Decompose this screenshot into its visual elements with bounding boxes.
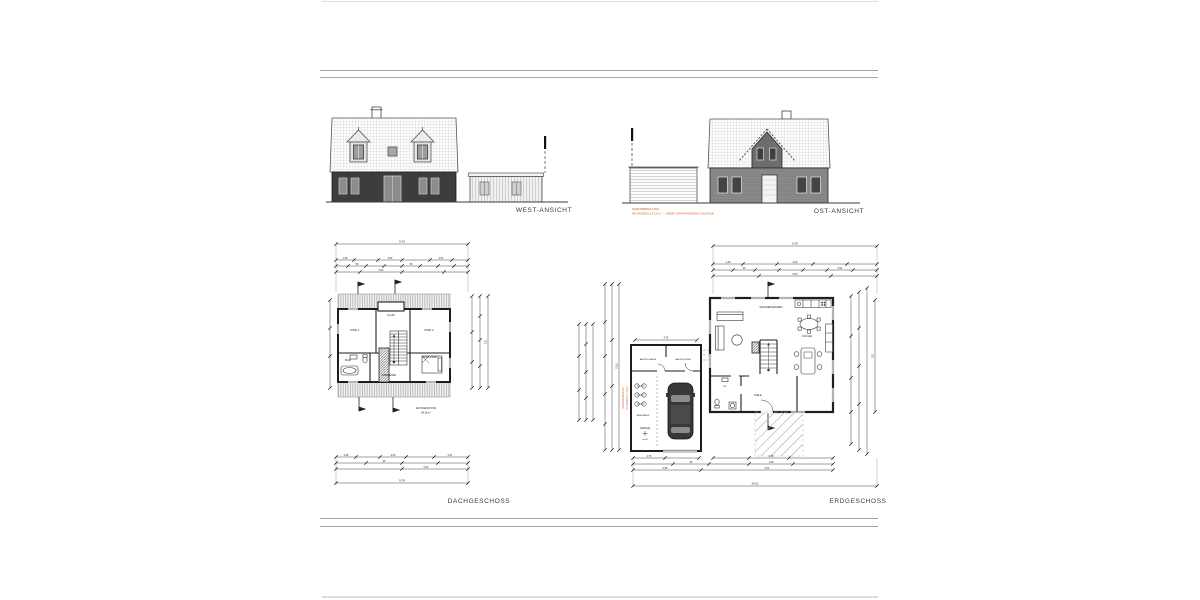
garage-boundary-note-line1: GRENZBEBAUUNG bbox=[622, 387, 625, 409]
room-label-ankleide: ANKLEIDE bbox=[382, 373, 396, 377]
eg-dim: 2,51 bbox=[838, 267, 843, 270]
dg-top-dimension-chains: 9,76 1,38 3,63 2,51 95 95 5,63 bbox=[334, 240, 469, 293]
dg-dim: 5,63 bbox=[424, 466, 429, 469]
eg-left-dimension-chains: 10,51 bbox=[577, 282, 620, 451]
eg-overall-total: 14,51 bbox=[751, 482, 759, 486]
room-label-schlafen: SCHLAFEN bbox=[423, 355, 438, 359]
garage-width-dim: 4,75 bbox=[664, 337, 669, 340]
dachgeschoss-title: DACHGESCHOSS bbox=[448, 498, 511, 505]
east-garage bbox=[629, 167, 699, 203]
dg-dim: 95 bbox=[356, 263, 359, 266]
sheet-header-line-1 bbox=[320, 70, 878, 71]
dg-dim: 1,38 bbox=[344, 454, 349, 457]
eg-dim: 1,38 bbox=[769, 461, 774, 464]
dg-depth-total: 7,01 bbox=[485, 339, 488, 344]
erdgeschoss-title: ERDGESCHOSS bbox=[829, 498, 886, 505]
sheet-top-edge-line bbox=[322, 1, 878, 2]
room-label-wc: WC bbox=[723, 386, 727, 388]
round-table-icon bbox=[732, 335, 742, 345]
east-entry-door-icon bbox=[762, 175, 777, 203]
car-icon bbox=[666, 383, 695, 439]
garage-level-value: ±0,00 bbox=[642, 439, 648, 441]
room-label-kueche: KÜCHE bbox=[802, 334, 812, 338]
eg-dim: 4,75 bbox=[647, 455, 652, 458]
dg-width-total-bottom: 9,76 bbox=[399, 479, 405, 483]
eg-right-dimension-chains: 7,01 bbox=[849, 286, 876, 455]
room-label-bad: BAD bbox=[345, 358, 351, 362]
dg-dim: 95 bbox=[410, 263, 413, 266]
dg-dormer-niche bbox=[378, 302, 404, 311]
sheet-bottom-edge-line bbox=[322, 596, 878, 598]
dg-width-total: 9,76 bbox=[399, 240, 405, 244]
eg-depth-total-right: 7,01 bbox=[872, 353, 875, 358]
dg-stairs bbox=[390, 331, 407, 365]
dg-dim: 95 bbox=[383, 460, 386, 463]
eg-chimney-shaft bbox=[752, 342, 759, 353]
terrace-hatch bbox=[755, 412, 803, 456]
west-entry-door-icon bbox=[384, 176, 401, 202]
dg-bottom-dimension-chains: 1,38 3,63 2,51 95 5,63 9,76 bbox=[334, 454, 469, 485]
west-elevation-drawing: WEST-ANSICHT bbox=[322, 106, 572, 218]
eg-dim: 3,63 bbox=[769, 455, 774, 458]
room-label-abstellraum: ABSTELLRAUM bbox=[640, 358, 656, 361]
boundary-note-line2: IM GANZEN ≤ 13,0 m — ÜBER VORHANDENEM GE… bbox=[632, 212, 714, 216]
eg-dim: 2,51 bbox=[765, 467, 770, 470]
boundary-note-line1: GRENZBEBAUUNG bbox=[632, 207, 660, 211]
dg-area-note-line1: DACHGESCHOSS bbox=[416, 407, 437, 410]
roof-vent-marker-icons bbox=[358, 280, 401, 294]
west-roof-window-icon bbox=[388, 147, 397, 156]
room-label-haustechnik: HAUSTECHNIK bbox=[675, 358, 691, 361]
west-house bbox=[330, 107, 458, 202]
eg-width-total: 9,76 bbox=[792, 242, 798, 246]
dg-dim: 3,63 bbox=[391, 454, 396, 457]
west-roof bbox=[330, 118, 458, 172]
dg-left-dimension-chain bbox=[328, 298, 331, 389]
east-elevation-drawing: GRENZBEBAUUNG IM GANZEN ≤ 13,0 m — ÜBER … bbox=[616, 104, 866, 222]
dg-dim: 1,38 bbox=[343, 257, 348, 260]
dachgeschoss-plan-drawing: 9,76 1,38 3,63 2,51 95 95 5,63 bbox=[326, 236, 511, 508]
dg-dim: 2,51 bbox=[439, 257, 444, 260]
east-elevation-label: OST-ANSICHT bbox=[814, 208, 864, 215]
sheet-header-line-2 bbox=[320, 77, 878, 78]
east-chimney-icon bbox=[782, 111, 791, 119]
eg-dim: 6,98 bbox=[663, 467, 668, 470]
room-label-wohnen-essen: WOHNEN/ESSEN bbox=[760, 305, 783, 309]
sink-icon bbox=[350, 355, 357, 359]
room-label-diele: DIELE bbox=[754, 394, 762, 397]
roof-vent-marker-icons-bottom bbox=[359, 397, 399, 412]
erdgeschoss-plan-drawing: 10,51 4,75 ABSTELLRAUM HAUSTECHNIK bbox=[545, 236, 895, 508]
eg-dim: 3,63 bbox=[793, 261, 798, 264]
toilet-icon bbox=[363, 355, 367, 363]
eg-dim: 95 bbox=[690, 461, 693, 464]
room-label-flur: FLUR bbox=[387, 313, 394, 317]
eg-main-house: WOHNEN/ESSEN KÜCHE DIELE WC bbox=[709, 297, 835, 414]
blueprint-sheet: WEST-ANSICHT bbox=[0, 0, 1200, 600]
eg-bottom-dimension-chains: 4,75 3,63 95 1,38 6,98 2,51 14,51 bbox=[631, 455, 878, 488]
room-label-kind2: KIND 2 bbox=[424, 328, 433, 332]
sheet-footer-line-2 bbox=[320, 526, 878, 527]
sheet-footer-line-1 bbox=[320, 518, 878, 519]
room-label-garage: GARAGE bbox=[640, 427, 651, 430]
eg-dim: 1,38 bbox=[726, 261, 731, 264]
dg-roof-overhang-bottom bbox=[338, 382, 450, 397]
west-garage bbox=[469, 173, 544, 202]
dg-right-dimension-chains: 7,01 bbox=[470, 294, 489, 389]
boundary-marker-icon bbox=[544, 136, 546, 173]
dg-dim: 3,63 bbox=[388, 257, 393, 260]
dining-table-icon bbox=[798, 315, 820, 333]
eg-top-dimension-chains: 9,76 1,38 3,63 95 2,51 5,63 bbox=[711, 242, 878, 295]
west-elevation-label: WEST-ANSICHT bbox=[516, 207, 572, 214]
garage-boundary-note-line2: IM GANZEN ≤ 13,0 m bbox=[626, 386, 629, 409]
boundary-marker-icon bbox=[631, 128, 633, 166]
room-label-fahrraeder: FAHRRÄDER bbox=[637, 414, 650, 417]
room-label-kind1: KIND 1 bbox=[350, 328, 359, 332]
dg-dim: 2,51 bbox=[448, 454, 453, 457]
eg-dim: 95 bbox=[743, 267, 746, 270]
eg-depth-total-left: 10,51 bbox=[616, 362, 619, 369]
bathtub-icon bbox=[341, 366, 358, 375]
east-house bbox=[708, 111, 830, 203]
dg-area-note-line2: 84,18 m² bbox=[421, 412, 431, 415]
dg-dim: 5,63 bbox=[379, 269, 384, 272]
eg-garage-block: 4,75 ABSTELLRAUM HAUSTECHNIK FAHRRÄDER bbox=[622, 337, 701, 453]
eg-dim: 5,63 bbox=[793, 273, 798, 276]
